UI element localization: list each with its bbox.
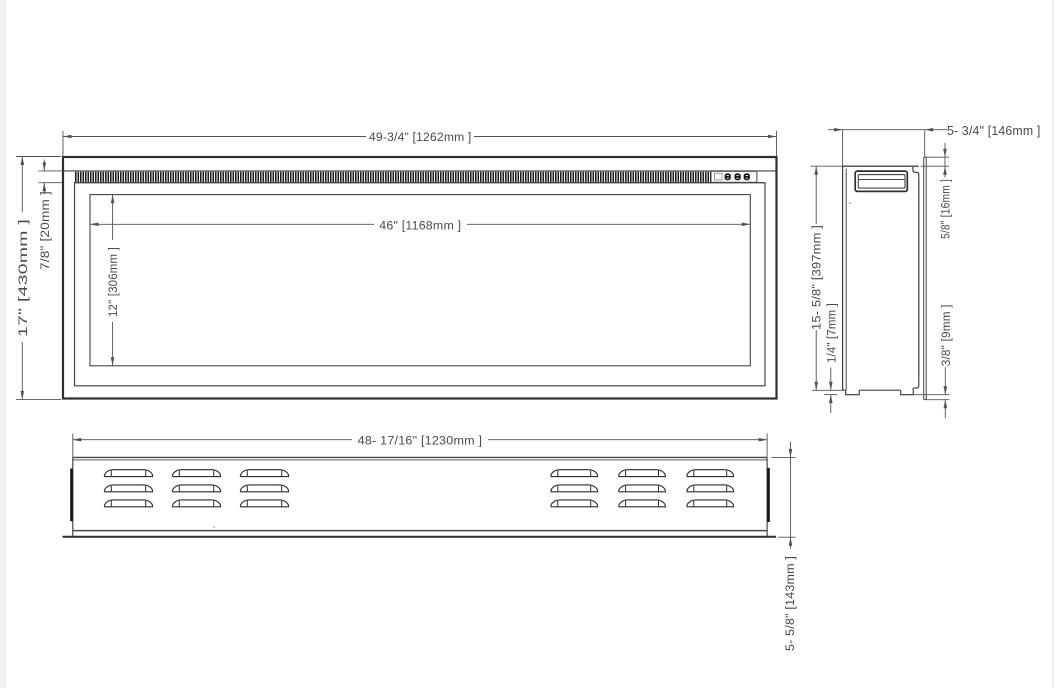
svg-text:12" [306mm ]: 12" [306mm ]: [106, 247, 120, 317]
svg-text:1/4" [7mm ]: 1/4" [7mm ]: [824, 303, 838, 363]
svg-text:5- 3/4" [146mm ]: 5- 3/4" [146mm ]: [947, 123, 1041, 138]
svg-text:49-3/4" [1262mm ]: 49-3/4" [1262mm ]: [369, 130, 472, 144]
svg-text:5- 5/8" [143mm ]: 5- 5/8" [143mm ]: [783, 556, 797, 651]
svg-text:3/8" [9mm ]: 3/8" [9mm ]: [939, 304, 953, 366]
svg-text:15- 5/8" [397mm ]: 15- 5/8" [397mm ]: [810, 225, 824, 330]
svg-text:7/8" [20mm ]: 7/8" [20mm ]: [38, 191, 52, 270]
svg-text:17" [430mm ]: 17" [430mm ]: [16, 219, 30, 337]
svg-text:46" [1168mm ]: 46" [1168mm ]: [379, 218, 461, 232]
svg-text:48- 17/16" [1230mm ]: 48- 17/16" [1230mm ]: [358, 433, 483, 447]
svg-text:5/8" [16mm ]: 5/8" [16mm ]: [939, 179, 953, 239]
